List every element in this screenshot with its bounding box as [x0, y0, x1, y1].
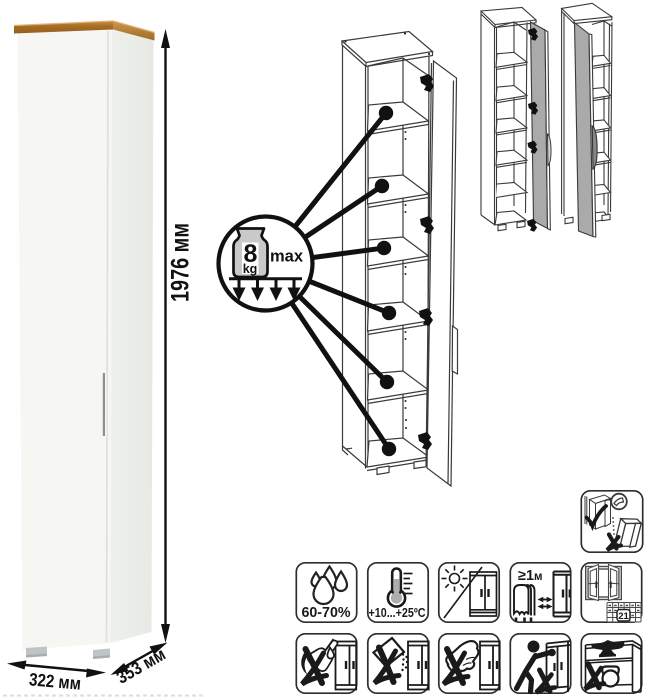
svg-text:60-70%: 60-70%: [302, 604, 351, 621]
svg-text:+10...+25ºC: +10...+25ºC: [369, 606, 426, 620]
svg-text:1976 мм: 1976 мм: [167, 223, 195, 302]
svg-text:kg: kg: [243, 262, 258, 276]
svg-text:max: max: [270, 248, 304, 266]
svg-text:21: 21: [618, 611, 629, 622]
svg-text:≥1м: ≥1м: [518, 568, 543, 584]
